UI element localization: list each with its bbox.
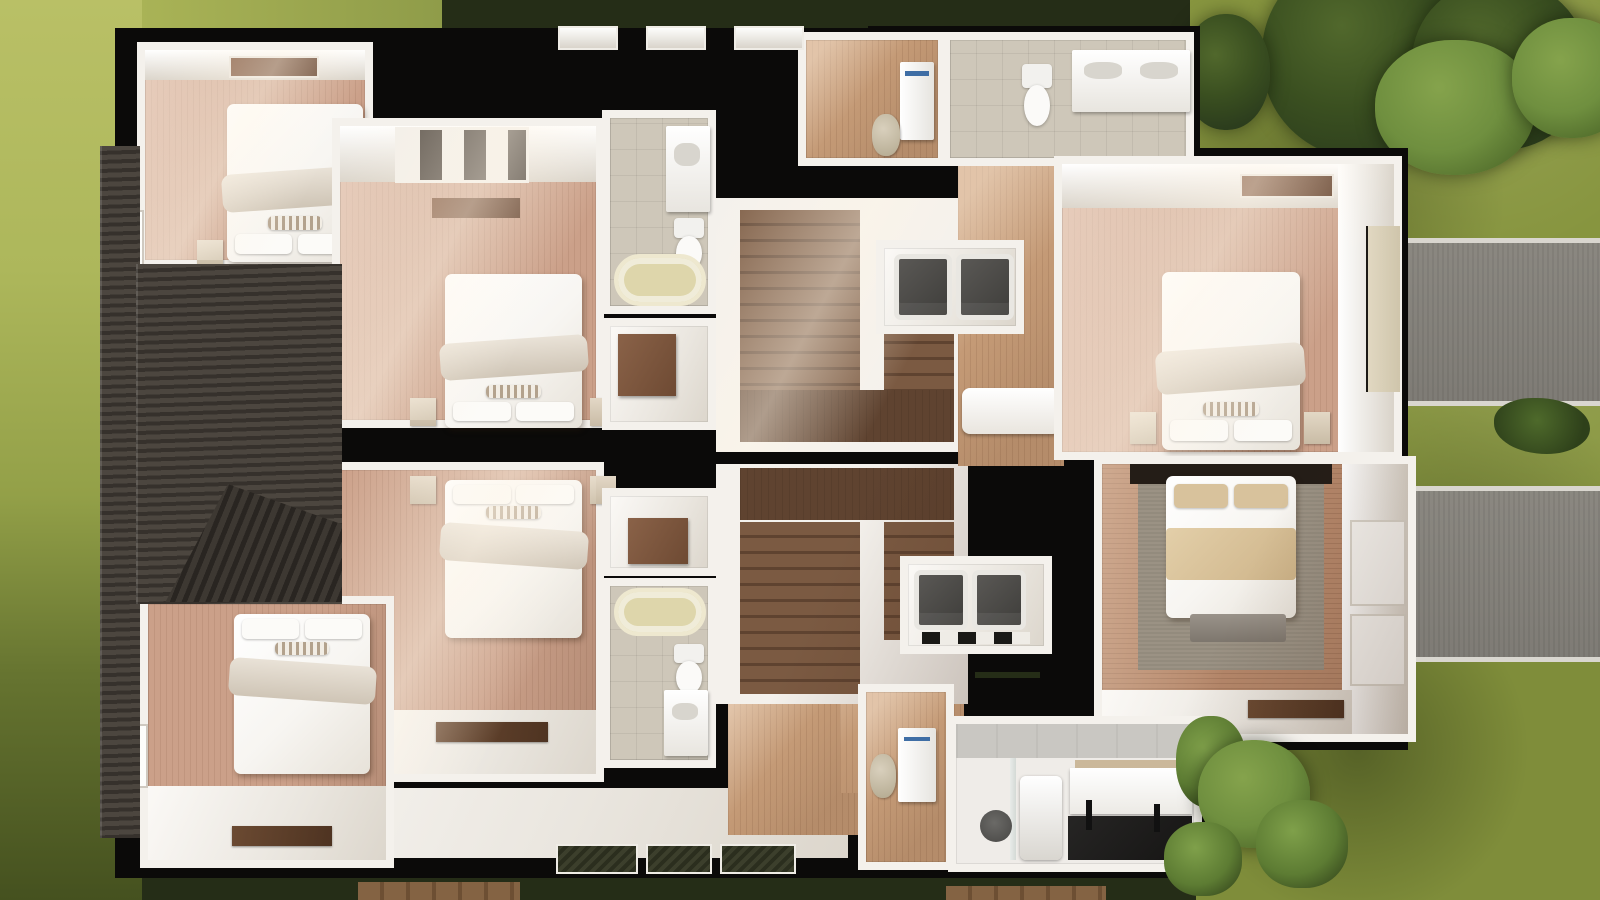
pillow bbox=[1174, 484, 1229, 508]
daybed bbox=[962, 388, 1060, 434]
window bbox=[648, 28, 704, 48]
floor-plan-scene bbox=[0, 0, 1600, 900]
boardwalk-bottom bbox=[358, 882, 520, 900]
accent-pillow bbox=[486, 506, 541, 519]
vanity bbox=[664, 690, 708, 756]
duvet-fold bbox=[227, 657, 376, 706]
shrub-icon bbox=[1164, 822, 1242, 896]
sink-basin bbox=[674, 143, 700, 165]
wardrobe bbox=[618, 334, 676, 396]
sink-basin bbox=[1140, 62, 1178, 78]
toilet-tank bbox=[1022, 64, 1052, 88]
wardrobe-open bbox=[398, 130, 526, 180]
double-bed bbox=[234, 614, 370, 774]
nightstand bbox=[1130, 412, 1156, 444]
pilates-reformer bbox=[1020, 776, 1062, 860]
bathroom-center-upper bbox=[602, 110, 716, 314]
bathroom-top-right bbox=[942, 32, 1194, 166]
shrub-icon bbox=[1256, 800, 1348, 888]
armchair bbox=[872, 114, 900, 156]
dresser bbox=[229, 56, 319, 78]
bedroom-bottom-left bbox=[140, 596, 394, 868]
wardrobe bbox=[628, 518, 688, 564]
duvet-fold bbox=[438, 334, 588, 381]
curb-line bbox=[1408, 486, 1600, 491]
laundry-closet-lower bbox=[900, 556, 1052, 654]
bathroom-center-lower bbox=[602, 578, 716, 768]
hallway-bottom bbox=[858, 684, 954, 870]
tan-blanket bbox=[1166, 528, 1296, 580]
pillow bbox=[453, 402, 511, 421]
sink-basin bbox=[1084, 62, 1122, 78]
duvet-fold bbox=[1155, 342, 1307, 395]
pillow bbox=[1170, 420, 1228, 441]
accent-pillow bbox=[268, 216, 322, 230]
refrigerator bbox=[900, 62, 934, 140]
sink-basin bbox=[672, 703, 698, 720]
duvet-fold bbox=[438, 522, 588, 570]
vanity bbox=[666, 126, 710, 212]
skylight bbox=[432, 198, 520, 218]
double-bed bbox=[445, 480, 582, 638]
window bbox=[558, 846, 636, 872]
pillow bbox=[516, 485, 574, 504]
bedroom-right-lower bbox=[1094, 456, 1416, 742]
dryer bbox=[972, 570, 1026, 630]
armchair bbox=[870, 754, 896, 798]
pillow bbox=[1234, 420, 1292, 441]
concrete-wall bbox=[956, 724, 1194, 758]
accent-pillow bbox=[275, 642, 329, 655]
weight-plate bbox=[980, 810, 1012, 842]
closet-center-lower bbox=[602, 488, 716, 576]
washer bbox=[914, 570, 968, 630]
checkered-mat bbox=[922, 632, 1030, 644]
window bbox=[722, 846, 794, 872]
desk bbox=[232, 826, 332, 846]
dryer bbox=[956, 254, 1014, 320]
dumbbell bbox=[1154, 804, 1160, 832]
stair-landing bbox=[740, 468, 954, 520]
glass-divider bbox=[1010, 758, 1016, 860]
entry-door bbox=[1366, 226, 1400, 392]
closet-door bbox=[1350, 614, 1406, 686]
dumbbell bbox=[1086, 800, 1092, 830]
double-bed bbox=[445, 274, 582, 428]
nightstand bbox=[410, 476, 436, 504]
bench bbox=[1190, 614, 1286, 642]
stair-landing bbox=[740, 390, 954, 442]
pillow bbox=[305, 619, 362, 639]
bedroom-right-upper bbox=[1054, 156, 1402, 460]
floor-white-band bbox=[148, 786, 386, 860]
pillow bbox=[242, 619, 299, 639]
closet-door bbox=[1350, 520, 1406, 606]
window bbox=[736, 28, 802, 48]
pillow bbox=[235, 234, 292, 254]
bedroom-mid-upper bbox=[332, 118, 604, 428]
curb-line bbox=[1402, 238, 1600, 243]
driveway-upper bbox=[1402, 238, 1600, 406]
laundry-closet-upper bbox=[876, 240, 1024, 334]
nightstand bbox=[197, 240, 223, 266]
curb-line bbox=[1408, 657, 1600, 662]
nightstand bbox=[1304, 412, 1330, 444]
washer bbox=[894, 254, 952, 320]
closet-center-upper bbox=[602, 318, 716, 430]
desk bbox=[1248, 700, 1344, 718]
roof-left-edge bbox=[100, 146, 140, 838]
pillow bbox=[453, 485, 511, 504]
toilet bbox=[1018, 64, 1056, 126]
pillow bbox=[516, 402, 574, 421]
double-vanity bbox=[1072, 50, 1190, 112]
stair-flight bbox=[740, 522, 860, 694]
stair-flight bbox=[740, 210, 860, 390]
accent-pillow bbox=[1203, 402, 1258, 416]
boardwalk-bottom bbox=[946, 886, 1106, 900]
pillow bbox=[1234, 484, 1289, 508]
bathtub bbox=[614, 588, 706, 636]
driveway-lower bbox=[1408, 486, 1600, 662]
window bbox=[560, 28, 616, 48]
toilet-tank bbox=[674, 218, 704, 238]
entry-hall-top bbox=[798, 32, 946, 166]
accent-pillow bbox=[486, 385, 541, 398]
double-bed bbox=[1162, 272, 1300, 450]
bathtub bbox=[614, 254, 706, 306]
refrigerator bbox=[898, 728, 936, 802]
desk bbox=[436, 722, 548, 742]
toilet-bowl bbox=[1024, 85, 1050, 126]
toilet bbox=[670, 644, 708, 694]
nightstand bbox=[410, 398, 436, 426]
window bbox=[648, 846, 710, 872]
double-bed bbox=[1166, 476, 1296, 618]
skylight bbox=[1240, 174, 1334, 198]
